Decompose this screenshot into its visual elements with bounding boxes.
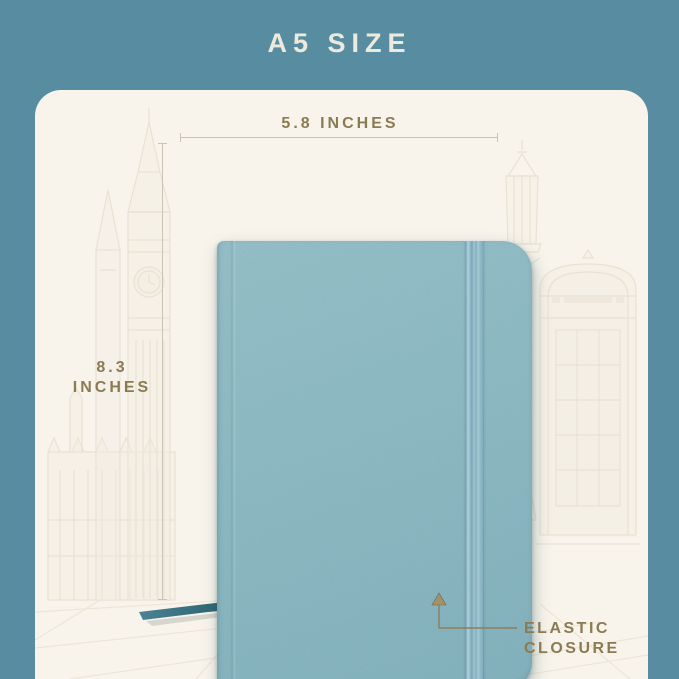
height-dimension-tick-bottom [158, 599, 167, 600]
height-dimension-unit: INCHES [62, 378, 162, 398]
callout-label-line2: CLOSURE [524, 639, 620, 659]
big-ben-sketch [128, 108, 170, 600]
leather-texture [217, 241, 532, 679]
width-dimension-label: 5.8 INCHES [240, 114, 440, 134]
height-dimension-tick-top [158, 143, 167, 144]
height-dimension-line [162, 143, 163, 600]
height-dimension-value: 8.3 [62, 358, 162, 378]
product-infographic: A5 SIZE [0, 0, 679, 679]
phone-booth-sketch [536, 250, 640, 544]
notebook-cover [217, 241, 532, 679]
width-dimension-tick-left [180, 133, 181, 142]
page-title: A5 SIZE [0, 28, 679, 59]
width-dimension-line [180, 137, 498, 138]
width-dimension-tick-right [497, 133, 498, 142]
callout-label-line1: ELASTIC [524, 619, 620, 639]
